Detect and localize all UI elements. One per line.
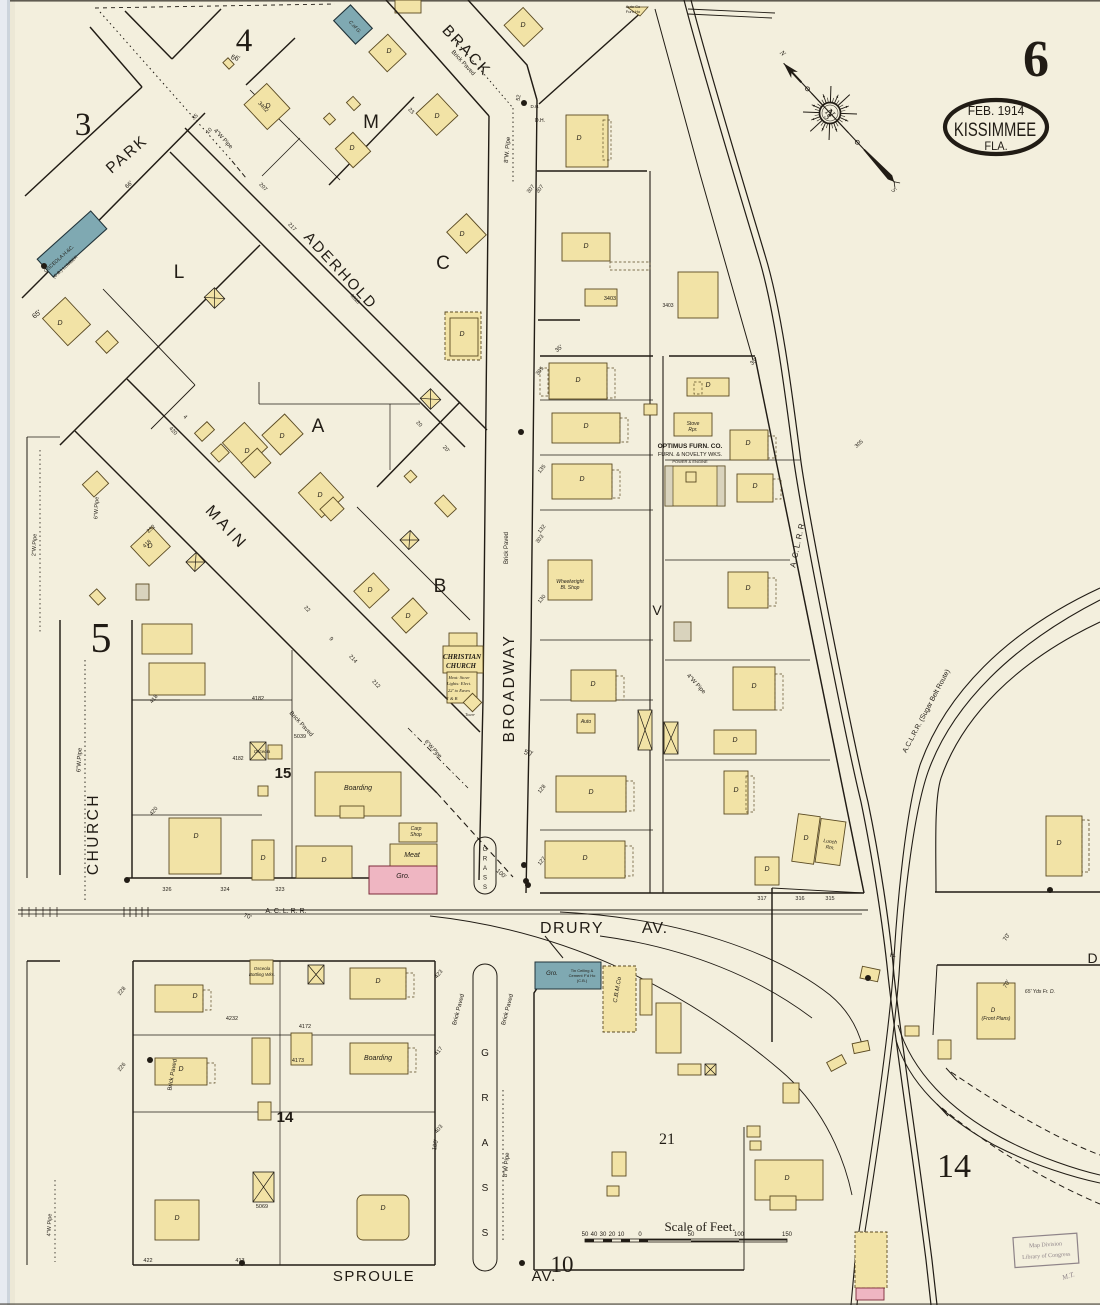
svg-text:SPROULE: SPROULE xyxy=(333,1268,415,1285)
svg-text:D: D xyxy=(1087,950,1098,966)
svg-text:14: 14 xyxy=(937,1148,971,1185)
svg-text:D.H.: D.H. xyxy=(535,118,545,124)
svg-text:22' to Eaves: 22' to Eaves xyxy=(448,688,470,693)
svg-text:L: L xyxy=(174,262,185,283)
svg-text:4173: 4173 xyxy=(292,1058,304,1064)
svg-text:D: D xyxy=(576,135,581,142)
svg-text:Boarding: Boarding xyxy=(344,785,372,792)
svg-text:323: 323 xyxy=(275,887,284,893)
svg-text:G: G xyxy=(483,847,488,853)
svg-text:D: D xyxy=(375,978,380,985)
svg-text:10: 10 xyxy=(618,1232,625,1238)
svg-text:D: D xyxy=(386,48,391,55)
svg-text:G: G xyxy=(481,1048,489,1059)
svg-text:D: D xyxy=(752,483,757,490)
svg-text:B: B xyxy=(434,576,447,597)
svg-text:A: A xyxy=(312,416,325,437)
svg-text:Shop: Shop xyxy=(410,832,422,838)
svg-text:D: D xyxy=(193,833,198,840)
svg-text:Brick Paved: Brick Paved xyxy=(504,532,510,564)
svg-text:6"W.Pipe: 6"W.Pipe xyxy=(93,497,100,520)
svg-text:Meat: Meat xyxy=(404,852,421,859)
svg-text:1 & B: 1 & B xyxy=(447,696,458,701)
svg-text:D: D xyxy=(745,585,750,592)
svg-text:D: D xyxy=(583,243,588,250)
svg-text:Gro.: Gro. xyxy=(546,971,558,977)
svg-text:20: 20 xyxy=(609,1232,616,1238)
svg-text:50: 50 xyxy=(582,1232,589,1238)
svg-text:D: D xyxy=(764,866,769,873)
svg-text:S: S xyxy=(483,876,487,882)
svg-text:Rm.: Rm. xyxy=(825,844,835,851)
svg-text:Lights: Elect.: Lights: Elect. xyxy=(446,681,471,686)
svg-text:50: 50 xyxy=(688,1232,695,1238)
svg-text:D: D xyxy=(349,145,354,152)
svg-text:D: D xyxy=(178,1066,183,1073)
svg-text:R: R xyxy=(483,857,488,863)
svg-text:D: D xyxy=(588,789,593,796)
svg-text:4232: 4232 xyxy=(226,1016,238,1022)
svg-text:CHURCH: CHURCH xyxy=(85,793,102,875)
svg-text:30: 30 xyxy=(600,1232,607,1238)
svg-text:BROADWAY: BROADWAY xyxy=(501,634,518,743)
svg-text:D: D xyxy=(1056,840,1061,847)
svg-text:317: 317 xyxy=(757,896,766,902)
svg-text:Bottling Wks.: Bottling Wks. xyxy=(249,972,275,977)
svg-text:D: D xyxy=(582,855,587,862)
svg-text:A: A xyxy=(483,866,487,872)
svg-text:D: D xyxy=(745,440,750,447)
svg-text:Scale of Feet.: Scale of Feet. xyxy=(664,1219,735,1234)
svg-text:S: S xyxy=(482,1228,489,1239)
svg-text:5: 5 xyxy=(91,616,112,662)
svg-text:D: D xyxy=(583,423,588,430)
svg-text:D: D xyxy=(405,613,410,620)
svg-text:40: 40 xyxy=(591,1232,598,1238)
svg-text:D: D xyxy=(579,476,584,483)
svg-text:6: 6 xyxy=(1023,31,1049,88)
svg-text:Osceola: Osceola xyxy=(254,749,271,754)
svg-text:D: D xyxy=(321,857,326,864)
svg-text:S: S xyxy=(482,1183,489,1194)
svg-text:OPTIMUS FURN. CO.: OPTIMUS FURN. CO. xyxy=(658,443,723,450)
svg-text:H.: H. xyxy=(890,953,896,959)
svg-text:POWER & ENGINE: POWER & ENGINE xyxy=(672,459,708,464)
svg-text:10: 10 xyxy=(551,1252,574,1277)
svg-text:Boarding: Boarding xyxy=(364,1055,392,1062)
svg-text:14: 14 xyxy=(277,1109,294,1126)
svg-text:21: 21 xyxy=(659,1131,675,1148)
svg-text:FEB. 1914: FEB. 1914 xyxy=(968,104,1025,119)
svg-text:D: D xyxy=(279,433,284,440)
svg-text:D: D xyxy=(803,835,808,842)
svg-text:422: 422 xyxy=(143,1258,152,1264)
svg-text:FLA.: FLA. xyxy=(984,141,1007,153)
svg-text:KISSIMMEE: KISSIMMEE xyxy=(954,119,1036,140)
svg-text:CHRISTIAN: CHRISTIAN xyxy=(443,653,482,661)
svg-text:V: V xyxy=(652,602,662,618)
svg-text:Auto: Auto xyxy=(580,719,592,725)
svg-text:4: 4 xyxy=(236,23,253,59)
svg-text:D: D xyxy=(575,377,580,384)
svg-text:D: D xyxy=(520,22,525,29)
svg-text:3403: 3403 xyxy=(604,296,616,302)
svg-text:D: D xyxy=(732,737,737,744)
svg-text:R: R xyxy=(481,1093,488,1104)
svg-text:324: 324 xyxy=(220,887,229,893)
svg-text:4"W Pipe: 4"W Pipe xyxy=(46,1213,53,1236)
svg-text:4182: 4182 xyxy=(252,696,264,702)
svg-text:D: D xyxy=(57,320,62,327)
svg-text:D: D xyxy=(192,993,197,1000)
svg-text:D: D xyxy=(784,1175,789,1182)
svg-text:Tower: Tower xyxy=(465,712,475,717)
svg-text:D: D xyxy=(244,448,249,455)
svg-text:15: 15 xyxy=(275,765,292,782)
svg-text:DRURY: DRURY xyxy=(540,920,604,937)
svg-text:(C.B.): (C.B.) xyxy=(577,978,588,983)
svg-text:D: D xyxy=(174,1215,179,1222)
svg-text:52: 52 xyxy=(516,94,523,101)
svg-text:Heat: Stove: Heat: Stove xyxy=(447,675,469,680)
svg-text:AV.: AV. xyxy=(642,920,668,937)
svg-text:M: M xyxy=(363,112,379,133)
svg-text:D: D xyxy=(459,331,464,338)
svg-text:Gro.: Gro. xyxy=(396,873,410,880)
svg-text:D: D xyxy=(459,231,464,238)
svg-text:65' Yds Fr. D.: 65' Yds Fr. D. xyxy=(1025,989,1055,995)
svg-text:316: 316 xyxy=(795,896,804,902)
svg-text:D: D xyxy=(733,787,738,794)
svg-text:D: D xyxy=(991,1008,996,1014)
svg-text:5039: 5039 xyxy=(294,734,306,740)
svg-text:CHURCH: CHURCH xyxy=(446,662,477,670)
svg-text:A: A xyxy=(482,1138,489,1149)
svg-text:326: 326 xyxy=(162,887,171,893)
svg-text:5069: 5069 xyxy=(256,1204,268,1210)
svg-text:Rpr.: Rpr. xyxy=(688,427,697,433)
svg-text:D: D xyxy=(590,681,595,688)
svg-text:A. C. L. R. R.: A. C. L. R. R. xyxy=(265,908,306,915)
svg-text:D.H.: D.H. xyxy=(531,104,540,109)
svg-text:315: 315 xyxy=(825,896,834,902)
svg-text:D: D xyxy=(751,683,756,690)
svg-text:D: D xyxy=(380,1205,385,1212)
svg-text:D: D xyxy=(147,543,152,550)
svg-text:Osceola: Osceola xyxy=(254,966,271,971)
svg-text:D: D xyxy=(317,492,322,499)
svg-text:Bl. Shop: Bl. Shop xyxy=(561,585,580,591)
svg-text:Furn Ho: Furn Ho xyxy=(626,9,641,14)
svg-text:D: D xyxy=(367,587,372,594)
svg-text:S: S xyxy=(483,885,487,891)
svg-text:100: 100 xyxy=(734,1232,745,1238)
svg-text:4172: 4172 xyxy=(299,1024,311,1030)
svg-text:2"W.Pipe: 2"W.Pipe xyxy=(31,534,38,557)
svg-text:(Front Plans): (Front Plans) xyxy=(982,1016,1011,1022)
svg-text:4182: 4182 xyxy=(232,756,243,762)
svg-text:3: 3 xyxy=(75,107,92,143)
svg-text:FURN. & NOVELTY WKS.: FURN. & NOVELTY WKS. xyxy=(658,452,723,458)
svg-text:C: C xyxy=(436,253,450,274)
svg-text:D: D xyxy=(705,382,710,389)
svg-text:3403: 3403 xyxy=(662,303,673,309)
svg-text:150: 150 xyxy=(782,1232,793,1238)
svg-text:D: D xyxy=(260,855,265,862)
svg-text:D: D xyxy=(434,113,439,120)
